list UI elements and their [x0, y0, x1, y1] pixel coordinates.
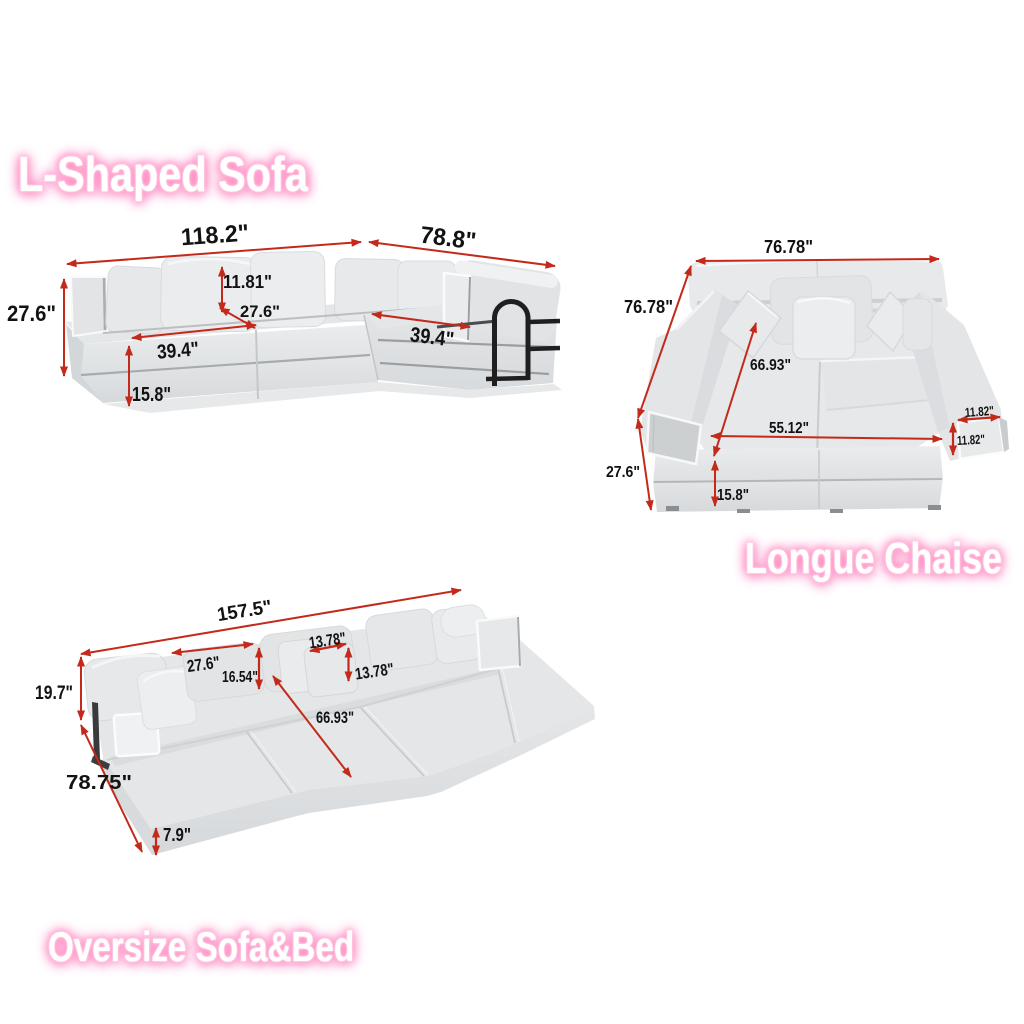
svg-text:19.7": 19.7": [35, 683, 73, 704]
svg-text:15.8": 15.8": [717, 487, 749, 504]
svg-text:76.78": 76.78": [624, 297, 673, 317]
svg-text:11.82": 11.82": [964, 403, 994, 420]
svg-text:11.81": 11.81": [223, 272, 272, 292]
svg-text:39.4": 39.4": [156, 338, 200, 364]
svg-text:11.82": 11.82": [957, 432, 986, 448]
svg-text:157.5": 157.5": [216, 597, 274, 626]
svg-text:66.93": 66.93": [316, 709, 354, 727]
svg-text:27.6": 27.6": [7, 301, 56, 326]
svg-text:55.12": 55.12": [769, 420, 809, 437]
svg-text:15.8": 15.8": [132, 384, 171, 406]
svg-text:76.78": 76.78": [764, 237, 813, 257]
svg-text:7.9": 7.9": [163, 825, 191, 845]
svg-text:16.54": 16.54": [222, 669, 258, 686]
svg-text:27.6": 27.6": [240, 302, 280, 321]
svg-text:78.75": 78.75": [66, 772, 132, 794]
svg-text:66.93": 66.93": [750, 357, 791, 374]
svg-text:118.2": 118.2": [180, 220, 250, 252]
svg-text:27.6": 27.6": [606, 464, 640, 481]
